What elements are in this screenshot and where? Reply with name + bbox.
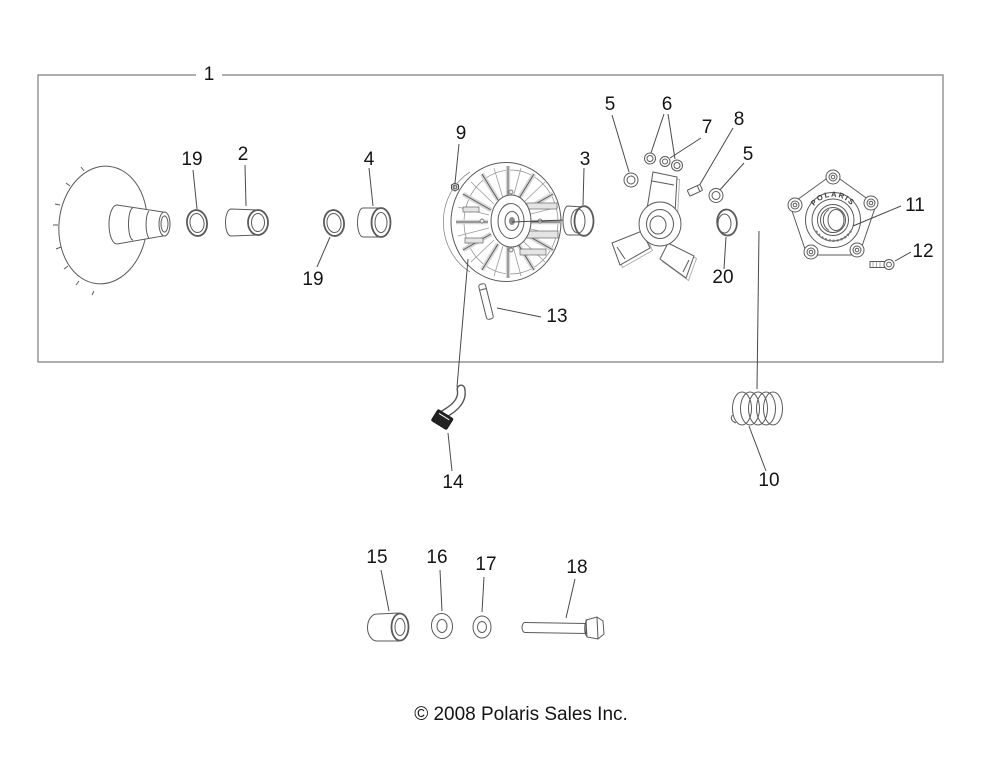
- callout-12-label: 12: [912, 241, 933, 262]
- callout-17-label: 17: [475, 554, 496, 575]
- leader-line-15: [381, 570, 389, 611]
- leader-line-5a: [612, 115, 629, 172]
- leader-line-18: [566, 579, 575, 618]
- leader-line-14-position: [457, 259, 468, 387]
- callout-15-label: 15: [366, 547, 387, 568]
- bushing-4: [358, 168, 391, 237]
- copyright-text: © 2008 Polaris Sales Inc.: [414, 704, 628, 725]
- movable-sheave-assembly: [443, 163, 561, 282]
- leader-line-3: [583, 168, 584, 205]
- callout-11-label: 11: [905, 195, 925, 216]
- ring-20: [716, 209, 738, 269]
- leader-line-13: [497, 308, 541, 317]
- bushing-2: [226, 165, 269, 236]
- callout-6-label: 6: [662, 94, 673, 115]
- sheave-shaft: [109, 205, 163, 244]
- leader-line-4: [369, 168, 373, 206]
- leader-line-9: [455, 144, 459, 183]
- pin-13: [478, 283, 541, 320]
- washer-16: [430, 570, 453, 639]
- leader-line-19a: [193, 170, 197, 209]
- leader-line-6a: [651, 114, 664, 153]
- spring-10: [731, 392, 782, 471]
- callout-1-label: 1: [204, 64, 215, 85]
- leader-line-19b: [317, 237, 330, 267]
- roller-5-right: [709, 163, 744, 203]
- callout-18-label: 18: [566, 557, 587, 578]
- leader-line-16: [440, 570, 442, 611]
- roller-5-left: [612, 115, 638, 187]
- spacer-15: [368, 570, 409, 641]
- callout-8-label: 8: [734, 109, 745, 130]
- leader-line-6b: [668, 114, 675, 159]
- callout-5a-label: 5: [605, 94, 616, 115]
- callout-14-label: 14: [442, 472, 464, 493]
- leader-line-5b: [719, 163, 744, 191]
- callout-9-label: 9: [456, 123, 467, 144]
- bolt-12: [870, 252, 911, 270]
- fixed-sheave: [53, 162, 170, 295]
- leader-line-10: [749, 426, 766, 471]
- ring-19-right: [317, 209, 346, 267]
- ring-19-left: [185, 170, 208, 237]
- cover-plate: POLARIS: [788, 170, 878, 259]
- callout-19b-label: 19: [302, 269, 323, 290]
- callout-13-label: 13: [546, 306, 567, 327]
- leader-line-17: [482, 577, 484, 612]
- pin-8: [687, 128, 733, 196]
- callout-3-label: 3: [580, 149, 591, 170]
- callout-10-label: 10: [758, 470, 779, 491]
- leader-line-2: [245, 165, 246, 206]
- callout-16-label: 16: [426, 547, 447, 568]
- leader-line-20: [724, 237, 726, 269]
- callout-4-label: 4: [364, 149, 375, 170]
- screw-9: [452, 144, 460, 191]
- leader-line-10-position: [757, 231, 759, 389]
- washer-17: [473, 577, 491, 638]
- leader-line-14: [448, 433, 452, 471]
- callout-2-label: 2: [238, 144, 249, 165]
- leader-line-7: [670, 138, 701, 158]
- bolt-18: [522, 579, 604, 639]
- fitting-14: [431, 389, 461, 471]
- callout-19a-label: 19: [181, 149, 202, 170]
- leader-line-12: [895, 252, 911, 261]
- callout-5b-label: 5: [743, 144, 754, 165]
- callout-20-label: 20: [712, 267, 733, 288]
- exploded-parts-diagram: 1 19 2 19 4 9: [0, 0, 1000, 784]
- spider: [612, 172, 697, 281]
- callout-7-label: 7: [702, 117, 713, 138]
